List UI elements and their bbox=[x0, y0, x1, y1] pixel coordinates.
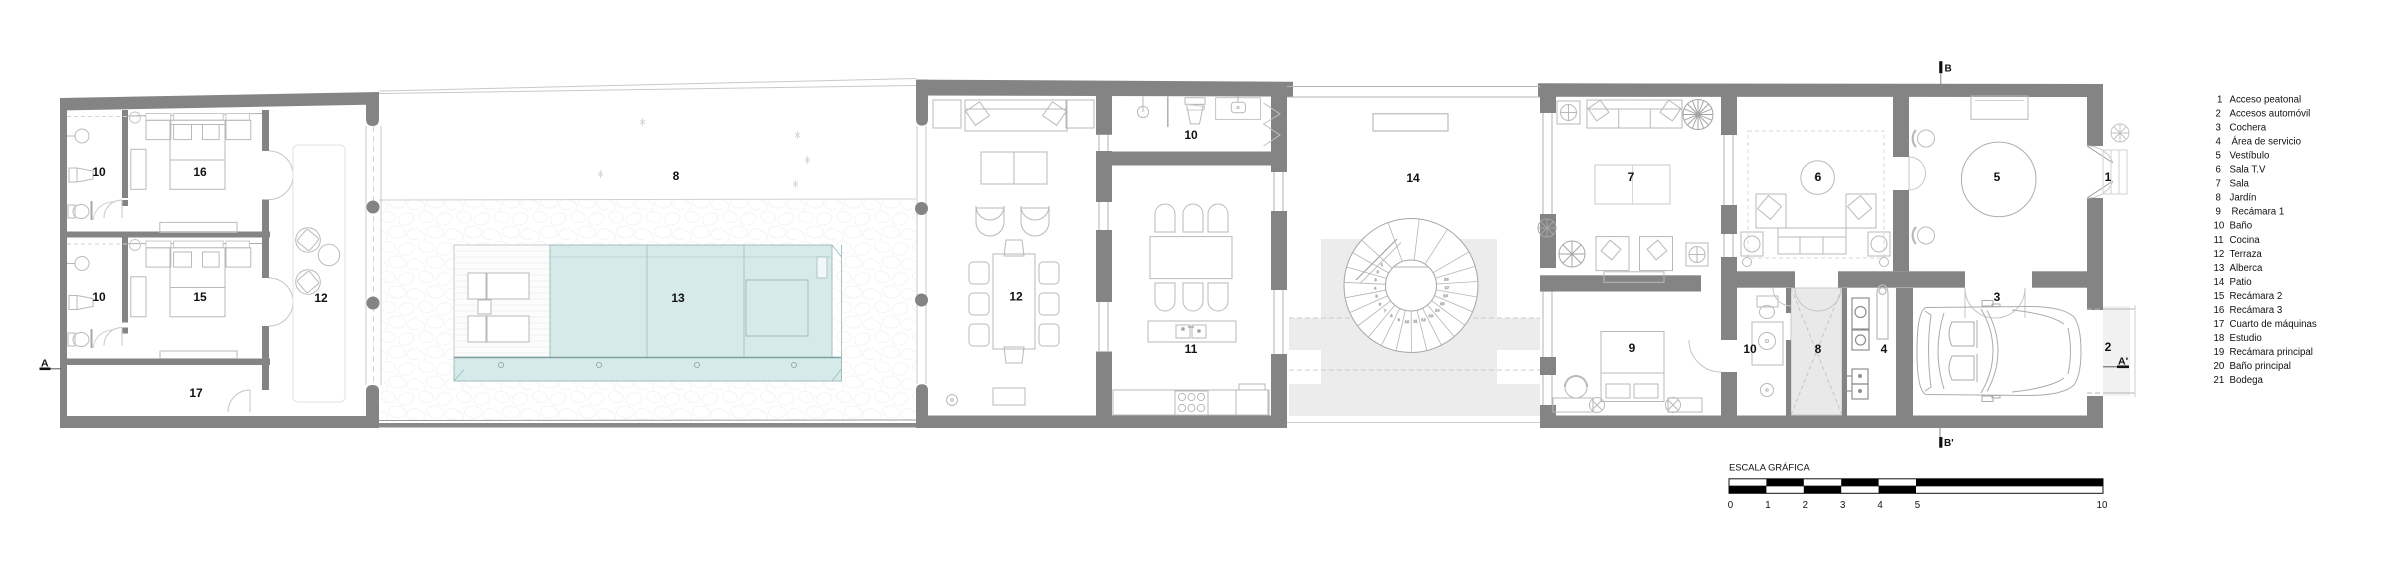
svg-text:10: 10 bbox=[1743, 342, 1757, 356]
svg-text:4: 4 bbox=[1877, 500, 1883, 511]
svg-text:15: 15 bbox=[2214, 291, 2225, 302]
svg-text:9: 9 bbox=[2216, 207, 2221, 218]
svg-text:Estudio: Estudio bbox=[2230, 333, 2262, 344]
svg-text:Cuarto de máquinas: Cuarto de máquinas bbox=[2230, 319, 2317, 330]
svg-text:5: 5 bbox=[2216, 151, 2221, 162]
svg-text:11: 11 bbox=[1185, 342, 1198, 356]
svg-text:1: 1 bbox=[2217, 95, 2222, 106]
svg-text:11: 11 bbox=[2214, 235, 2224, 246]
svg-text:15: 15 bbox=[193, 290, 207, 304]
svg-text:Sala: Sala bbox=[2230, 179, 2250, 190]
svg-text:10: 10 bbox=[2214, 221, 2225, 232]
svg-text:14: 14 bbox=[1406, 171, 1420, 185]
svg-text:12: 12 bbox=[1421, 317, 1426, 322]
svg-text:12: 12 bbox=[1009, 290, 1023, 304]
svg-text:21: 21 bbox=[2214, 375, 2225, 386]
svg-text:19: 19 bbox=[2214, 347, 2225, 358]
svg-text:6: 6 bbox=[1815, 170, 1822, 184]
svg-text:3: 3 bbox=[1840, 500, 1845, 511]
svg-text:18: 18 bbox=[1444, 277, 1449, 282]
svg-text:Sala T.V: Sala T.V bbox=[2230, 165, 2266, 176]
svg-text:13: 13 bbox=[1429, 313, 1434, 318]
svg-text:17: 17 bbox=[189, 386, 203, 400]
svg-text:1: 1 bbox=[1765, 500, 1770, 511]
svg-text:Vestíbulo: Vestíbulo bbox=[2230, 151, 2270, 162]
svg-text:7: 7 bbox=[1628, 170, 1635, 184]
svg-text:Accesos automóvil: Accesos automóvil bbox=[2230, 109, 2311, 120]
svg-text:10: 10 bbox=[92, 290, 106, 304]
svg-text:13: 13 bbox=[2214, 263, 2225, 274]
svg-text:15: 15 bbox=[1440, 301, 1445, 306]
svg-text:3: 3 bbox=[2216, 123, 2221, 134]
svg-text:10: 10 bbox=[2097, 500, 2108, 511]
svg-text:10: 10 bbox=[1405, 319, 1410, 324]
svg-text:16: 16 bbox=[193, 165, 207, 179]
svg-text:4: 4 bbox=[2216, 137, 2222, 148]
svg-text:14: 14 bbox=[1435, 308, 1440, 313]
svg-text:16: 16 bbox=[2214, 305, 2225, 316]
svg-text:6: 6 bbox=[2216, 165, 2221, 176]
svg-text:Recámara 1: Recámara 1 bbox=[2232, 207, 2285, 218]
svg-text:13: 13 bbox=[671, 291, 685, 305]
svg-text:Terraza: Terraza bbox=[2230, 249, 2263, 260]
svg-text:Bodega: Bodega bbox=[2230, 375, 2264, 386]
svg-text:20: 20 bbox=[2214, 361, 2225, 372]
svg-text:14: 14 bbox=[2214, 277, 2225, 288]
svg-text:12: 12 bbox=[2214, 249, 2225, 260]
svg-text:Baño principal: Baño principal bbox=[2230, 361, 2291, 372]
svg-text:2: 2 bbox=[2105, 340, 2112, 354]
svg-text:B: B bbox=[1945, 64, 1952, 75]
svg-text:16: 16 bbox=[1443, 293, 1448, 298]
svg-text:8: 8 bbox=[1815, 342, 1822, 356]
svg-text:2: 2 bbox=[1803, 500, 1808, 511]
svg-text:8: 8 bbox=[673, 169, 680, 183]
svg-text:2: 2 bbox=[2216, 109, 2221, 120]
svg-text:Alberca: Alberca bbox=[2230, 263, 2263, 274]
svg-text:12: 12 bbox=[314, 291, 328, 305]
svg-text:5: 5 bbox=[1994, 170, 2001, 184]
svg-text:B': B' bbox=[1944, 438, 1954, 449]
svg-text:5: 5 bbox=[1915, 500, 1920, 511]
svg-text:7: 7 bbox=[2216, 179, 2221, 190]
svg-text:Baño: Baño bbox=[2230, 221, 2253, 232]
svg-text:3: 3 bbox=[1994, 290, 2001, 304]
svg-text:10: 10 bbox=[1184, 128, 1198, 142]
svg-text:Recámara 2: Recámara 2 bbox=[2230, 291, 2283, 302]
svg-text:1: 1 bbox=[2105, 170, 2112, 184]
svg-text:17: 17 bbox=[1445, 285, 1450, 290]
svg-text:8: 8 bbox=[2216, 193, 2221, 204]
svg-text:17: 17 bbox=[2214, 319, 2225, 330]
svg-text:0: 0 bbox=[1728, 500, 1734, 511]
svg-text:Recámara principal: Recámara principal bbox=[2230, 347, 2313, 358]
svg-text:Patio: Patio bbox=[2230, 277, 2252, 288]
svg-text:10: 10 bbox=[92, 165, 106, 179]
svg-text:ESCALA GRÁFICA: ESCALA GRÁFICA bbox=[1729, 462, 1811, 473]
svg-text:Jardín: Jardín bbox=[2230, 193, 2257, 204]
svg-text:Cochera: Cochera bbox=[2230, 123, 2267, 134]
svg-text:Acceso peatonal: Acceso peatonal bbox=[2230, 95, 2302, 106]
svg-text:4: 4 bbox=[1881, 342, 1888, 356]
svg-text:9: 9 bbox=[1629, 341, 1636, 355]
svg-text:Área de servicio: Área de servicio bbox=[2232, 137, 2301, 148]
svg-text:Recámara 3: Recámara 3 bbox=[2230, 305, 2283, 316]
svg-text:Cocina: Cocina bbox=[2230, 235, 2261, 246]
svg-text:18: 18 bbox=[2214, 333, 2225, 344]
